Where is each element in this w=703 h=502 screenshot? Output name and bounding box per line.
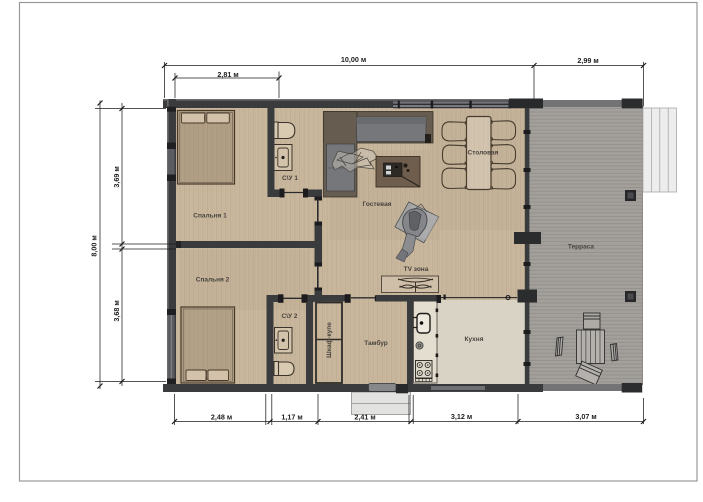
- svg-text:8,00 м: 8,00 м: [90, 235, 99, 256]
- svg-text:2,99 м: 2,99 м: [577, 56, 598, 65]
- svg-text:Спальня 1: Спальня 1: [193, 213, 227, 220]
- svg-text:1,17 м: 1,17 м: [281, 412, 302, 421]
- svg-text:С\У 1: С\У 1: [282, 175, 298, 182]
- svg-text:2,41 м: 2,41 м: [354, 412, 375, 421]
- svg-text:3,07 м: 3,07 м: [575, 412, 596, 421]
- svg-text:С\У 2: С\У 2: [282, 313, 298, 320]
- svg-text:3,68 м: 3,68 м: [112, 300, 121, 321]
- svg-text:Шкаф-купе: Шкаф-купе: [326, 322, 333, 358]
- svg-text:10,00 м: 10,00 м: [341, 55, 366, 64]
- svg-text:3,69 м: 3,69 м: [112, 166, 121, 187]
- svg-text:2,81 м: 2,81 м: [217, 70, 238, 79]
- svg-text:TV зона: TV зона: [404, 266, 429, 273]
- svg-text:Тамбур: Тамбур: [364, 339, 388, 347]
- svg-text:3,12 м: 3,12 м: [451, 412, 472, 421]
- svg-text:Гостевая: Гостевая: [363, 201, 392, 208]
- svg-text:2,48 м: 2,48 м: [211, 412, 232, 421]
- svg-text:Терраса: Терраса: [568, 244, 595, 251]
- svg-text:Спальня 2: Спальня 2: [196, 276, 230, 283]
- svg-text:Столовая: Столовая: [468, 150, 499, 157]
- svg-text:Кухня: Кухня: [465, 336, 484, 343]
